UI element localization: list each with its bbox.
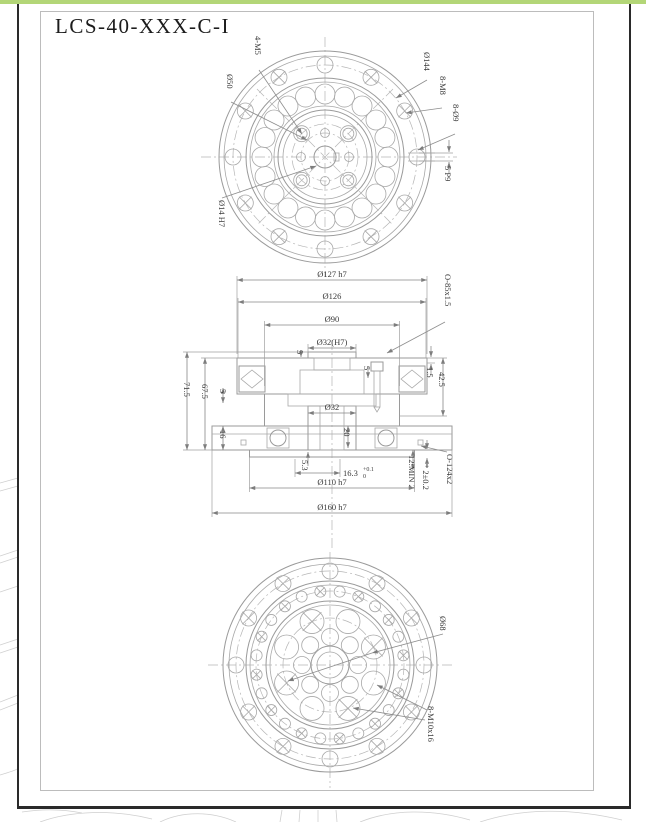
dim-label-67-5: 67.5 bbox=[200, 384, 210, 399]
dim-label-2pm: * 2±0.2 bbox=[421, 464, 431, 490]
label-8m10: 8-M10x16 bbox=[426, 706, 436, 742]
section-view-drawing: Ø127 h7 Ø126 Ø90 Ø32(H7) 71.5 67.5 5 16 … bbox=[175, 266, 480, 552]
bottom-view-drawing: Ø68 8-M10x16 bbox=[200, 548, 495, 800]
leader-m10-b bbox=[353, 708, 425, 720]
dim-label-d160: Ø160 h7 bbox=[317, 502, 347, 512]
seal-mark-right bbox=[418, 440, 423, 445]
dim-label-71-5: 71.5 bbox=[182, 382, 192, 397]
dim-label-16: 16 bbox=[218, 430, 228, 439]
leader-d14h7 bbox=[222, 166, 316, 198]
dim-label-d32: Ø32 bbox=[325, 402, 340, 412]
ball-left bbox=[270, 430, 286, 446]
leader-8m8 bbox=[406, 108, 442, 113]
leader-oring85 bbox=[387, 322, 445, 353]
bolt-shank bbox=[374, 371, 380, 407]
bolt-tip bbox=[374, 407, 380, 412]
dim-label-d90: Ø90 bbox=[325, 314, 340, 324]
window-frame-right bbox=[629, 4, 631, 808]
dim-label-min2: 12:MIN 2 bbox=[407, 455, 417, 489]
label-d50: Ø50 bbox=[225, 74, 235, 89]
label-4m5: 4-M5 bbox=[253, 36, 263, 55]
roller-left bbox=[241, 370, 263, 388]
window-frame-bottom bbox=[17, 806, 631, 809]
dim-label-5-top: 5 bbox=[295, 350, 305, 354]
dim-label-5-mid: 5 bbox=[362, 366, 372, 370]
window-frame-left bbox=[17, 4, 19, 808]
dim-label-5-left: 5 bbox=[218, 389, 228, 393]
dim-label-1-5: 1.5 bbox=[425, 367, 435, 378]
label-8m8: 8-M8 bbox=[438, 76, 448, 95]
label-d144: Ø144 bbox=[422, 52, 432, 72]
dim-label-20: 20 bbox=[342, 428, 352, 437]
dim-label-d127: Ø127 h7 bbox=[317, 269, 347, 279]
dim-label-d126: Ø126 bbox=[323, 291, 342, 301]
dim-label-d32h7: Ø32(H7) bbox=[317, 337, 348, 347]
leader-oring124 bbox=[421, 446, 447, 452]
leader-d68-b bbox=[288, 653, 372, 681]
accent-top-bar bbox=[0, 0, 646, 4]
top-view-drawing: 4-M5 Ø50 Ø144 8-M8 8-Ø9 5 P9 Ø14 H7 bbox=[195, 28, 465, 278]
seal-mark-left bbox=[241, 440, 246, 445]
label-d14h7: Ø14 H7 bbox=[217, 200, 227, 227]
dim-tol-dn: 0 bbox=[363, 474, 366, 480]
label-d68: Ø68 bbox=[438, 616, 448, 631]
dim-label-5-3: 5.3 bbox=[300, 460, 310, 471]
roller-right bbox=[401, 370, 423, 388]
label-oring124: O-124x2 bbox=[445, 454, 455, 484]
ball-right bbox=[378, 430, 394, 446]
label-8d9: 8-Ø9 bbox=[451, 104, 461, 121]
dim-label-42-5: 42.5 bbox=[437, 372, 447, 387]
label-5p9: 5 P9 bbox=[443, 166, 453, 181]
label-oring85: O-85x1.5 bbox=[443, 274, 453, 306]
dim-label-d110: Ø110 h7 bbox=[317, 477, 346, 487]
dim-tol-up: +0.1 bbox=[363, 467, 374, 473]
